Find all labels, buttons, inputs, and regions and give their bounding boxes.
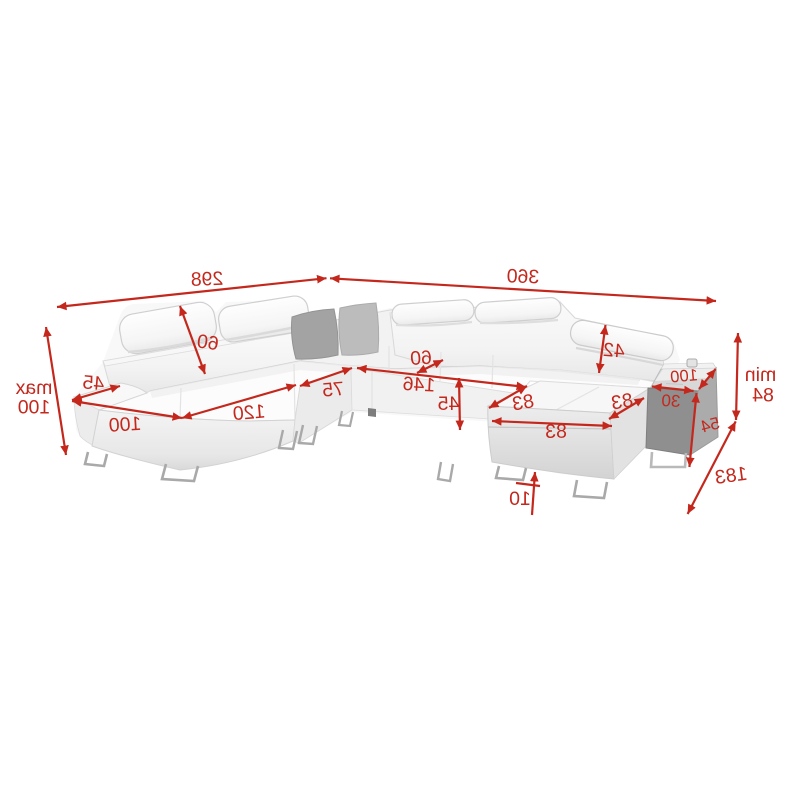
svg-text:146: 146 <box>402 373 436 397</box>
svg-text:83: 83 <box>610 389 635 414</box>
svg-text:30: 30 <box>661 391 681 411</box>
svg-text:60: 60 <box>409 347 432 370</box>
svg-text:84: 84 <box>752 384 774 406</box>
svg-text:183: 183 <box>713 463 748 489</box>
svg-text:60: 60 <box>195 330 220 355</box>
svg-text:298: 298 <box>190 268 223 291</box>
svg-text:42: 42 <box>602 339 626 363</box>
svg-text:83: 83 <box>545 421 567 443</box>
svg-text:100: 100 <box>670 366 699 386</box>
svg-text:360: 360 <box>506 265 539 288</box>
svg-text:75: 75 <box>321 378 345 402</box>
svg-text:10: 10 <box>509 488 531 510</box>
svg-text:min: min <box>745 364 776 386</box>
svg-text:83: 83 <box>511 390 536 415</box>
svg-text:100: 100 <box>18 396 51 418</box>
svg-text:45: 45 <box>82 371 106 395</box>
svg-text:100: 100 <box>108 413 142 437</box>
svg-text:120: 120 <box>232 400 266 425</box>
svg-text:45: 45 <box>438 393 460 415</box>
